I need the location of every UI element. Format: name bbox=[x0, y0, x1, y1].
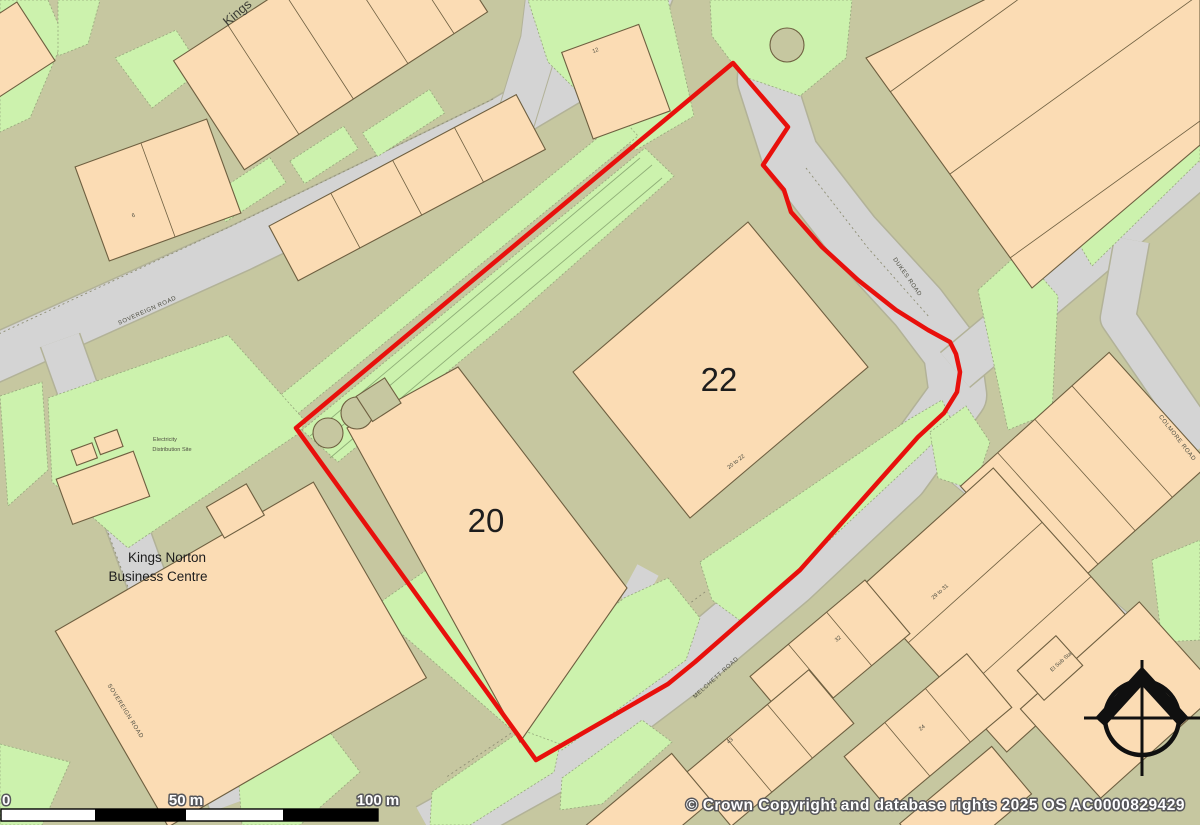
scale-segment-4 bbox=[283, 809, 378, 821]
label-business-centre: Business Centre bbox=[108, 569, 207, 584]
copyright-notice: © Crown Copyright and database rights 20… bbox=[686, 797, 1185, 814]
pond bbox=[770, 28, 804, 62]
label-distribution-site: Distribution Site bbox=[152, 447, 191, 453]
label-electricity: Electricity bbox=[153, 437, 177, 443]
scale-label-0: 0 bbox=[2, 792, 10, 809]
label-building-22: 22 bbox=[701, 361, 738, 398]
scale-label-100m: 100 m bbox=[357, 792, 400, 809]
scale-label-50m: 50 m bbox=[169, 792, 203, 809]
scale-segment-1 bbox=[1, 809, 95, 821]
scale-segment-3 bbox=[186, 809, 283, 821]
map-stage: 20 22 20 to 22 Kings Norton Business Cen… bbox=[0, 0, 1200, 825]
os-site-plan-map: 20 22 20 to 22 Kings Norton Business Cen… bbox=[0, 0, 1200, 825]
label-kings-norton: Kings Norton bbox=[128, 550, 206, 565]
storage-tank-1 bbox=[313, 418, 343, 448]
label-building-20: 20 bbox=[468, 502, 505, 539]
scale-segment-2 bbox=[95, 809, 186, 821]
